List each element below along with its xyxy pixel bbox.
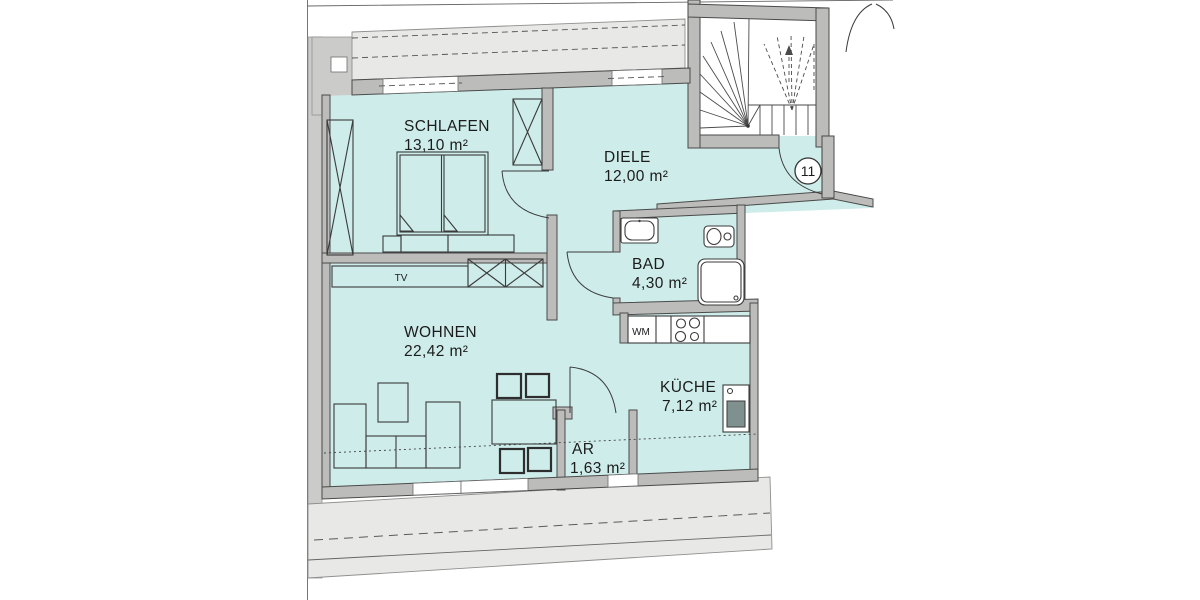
stair-winder-center (746, 124, 750, 128)
wall-ar-right (629, 410, 637, 484)
window-bottom-1 (413, 481, 461, 495)
floor-plan-page: SCHLAFEN 13,10 m² DIELE 12,00 m² BAD 4,3… (0, 0, 1200, 600)
wall-kueche-right (750, 303, 758, 473)
shower (698, 259, 744, 305)
unit-number: 11 (801, 163, 816, 179)
room-label-diele: DIELE (604, 149, 651, 166)
wall-schlafen-diele (542, 88, 553, 170)
left-site-strip (308, 37, 322, 578)
room-area-ar: 1,63 m² (570, 460, 625, 477)
room-area-wohnen: 22,42 m² (404, 343, 468, 360)
building-top-edge (307, 0, 893, 6)
stairwell (688, 0, 829, 148)
wall-entry-right (822, 136, 834, 198)
room-area-bad: 4,30 m² (632, 275, 687, 292)
chimney-detail (331, 57, 347, 72)
room-area-schlafen: 13,10 m² (404, 137, 468, 154)
room-label-schlafen: SCHLAFEN (404, 118, 490, 135)
room-area-diele: 12,00 m² (604, 168, 668, 185)
wall-schlafen-wohnen (322, 253, 557, 263)
room-label-kueche: KÜCHE (660, 378, 716, 396)
floor-plan: SCHLAFEN 13,10 m² DIELE 12,00 m² BAD 4,3… (0, 0, 1200, 600)
room-area-kueche: 7,12 m² (662, 398, 717, 415)
kitchen-sink (723, 385, 749, 432)
wall-bad-left-upper (613, 211, 620, 252)
stairwell-floor (700, 17, 816, 135)
room-label-ar: AR (572, 441, 594, 458)
room-label-wohnen: WOHNEN (404, 324, 477, 341)
room-label-bad: BAD (632, 256, 665, 273)
wall-kueche-counter-stub (620, 313, 628, 343)
door-landing-arcs (846, 4, 894, 52)
stairwell-wall-right (816, 8, 829, 147)
washbasin (621, 218, 658, 243)
toilet (704, 226, 734, 247)
window-top-2 (612, 69, 662, 86)
tv-label: TV (395, 273, 408, 284)
wall-exterior-left (322, 95, 330, 490)
window-bottom-2 (461, 478, 528, 493)
unit-number-badge: 11 (795, 158, 821, 184)
wall-wohnen-corridor (547, 215, 557, 320)
stairwell-wall-bottom (700, 135, 779, 148)
wm-label: WM (632, 327, 650, 338)
